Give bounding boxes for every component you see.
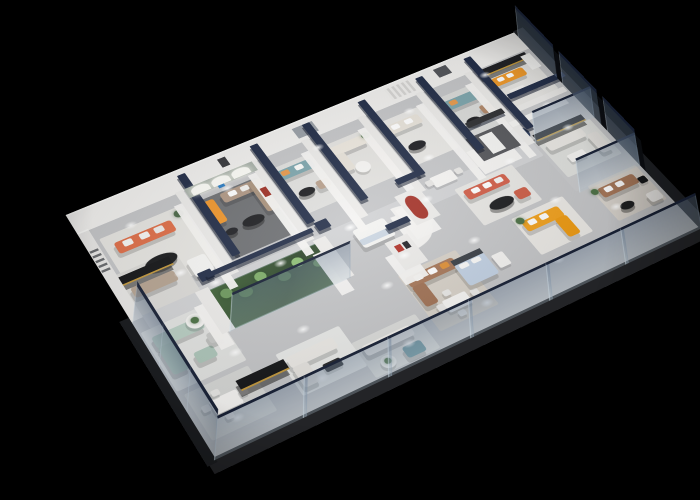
ceiling-light — [294, 323, 312, 336]
ceiling-light — [378, 279, 396, 292]
showroom-render — [0, 0, 700, 500]
floor-plan — [66, 32, 699, 457]
ceiling-light — [466, 234, 483, 246]
